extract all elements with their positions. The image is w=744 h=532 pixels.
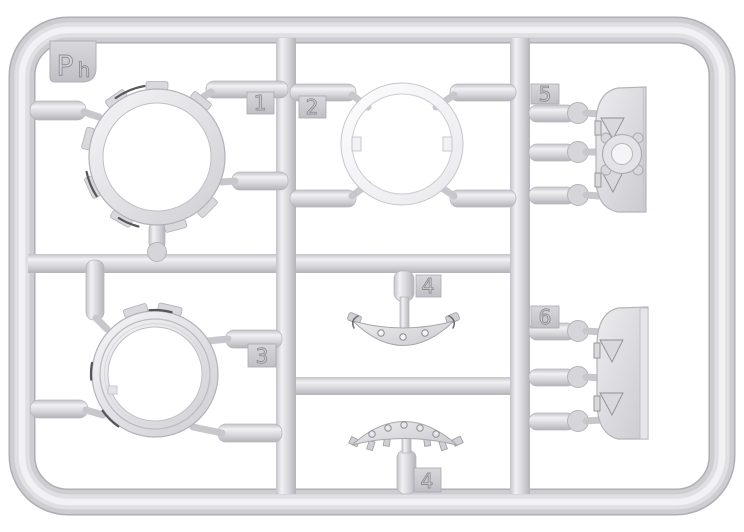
sprue-photo: P h 1 2 3 4 4 5 6	[0, 0, 744, 532]
part-6-semicircular-plate	[594, 307, 648, 439]
part-tag-6: 6	[531, 305, 559, 329]
sprue-code-letter-1: P	[57, 49, 74, 82]
part-tag-4-upper: 4	[416, 274, 441, 298]
mount-ring-boss	[601, 133, 643, 175]
part-tag-1-number: 1	[254, 91, 267, 115]
part-tag-3-number: 3	[256, 344, 269, 368]
part-tag-2-number: 2	[306, 95, 319, 119]
runner-horizontal-lower	[286, 377, 516, 395]
part-tag-3: 3	[248, 344, 276, 368]
part-tag-6-number: 6	[539, 305, 552, 329]
part-tag-5: 5	[531, 82, 559, 106]
sprue-label-tag: P h	[50, 41, 96, 82]
part-5-semicircular-mount	[595, 87, 646, 212]
ring-inner-notch	[108, 386, 117, 394]
part-tag-2: 2	[299, 95, 326, 119]
part-tag-5-number: 5	[539, 82, 552, 106]
part-tag-4-lower-number: 4	[421, 469, 434, 493]
sprue-code-letter-2: h	[78, 58, 91, 82]
plate-edge-strip	[640, 308, 648, 439]
part-tag-1: 1	[247, 91, 274, 115]
runner-vertical-right	[510, 38, 530, 494]
part-tag-4-lower: 4	[414, 468, 441, 493]
part-tag-4-upper-number: 4	[422, 274, 435, 298]
